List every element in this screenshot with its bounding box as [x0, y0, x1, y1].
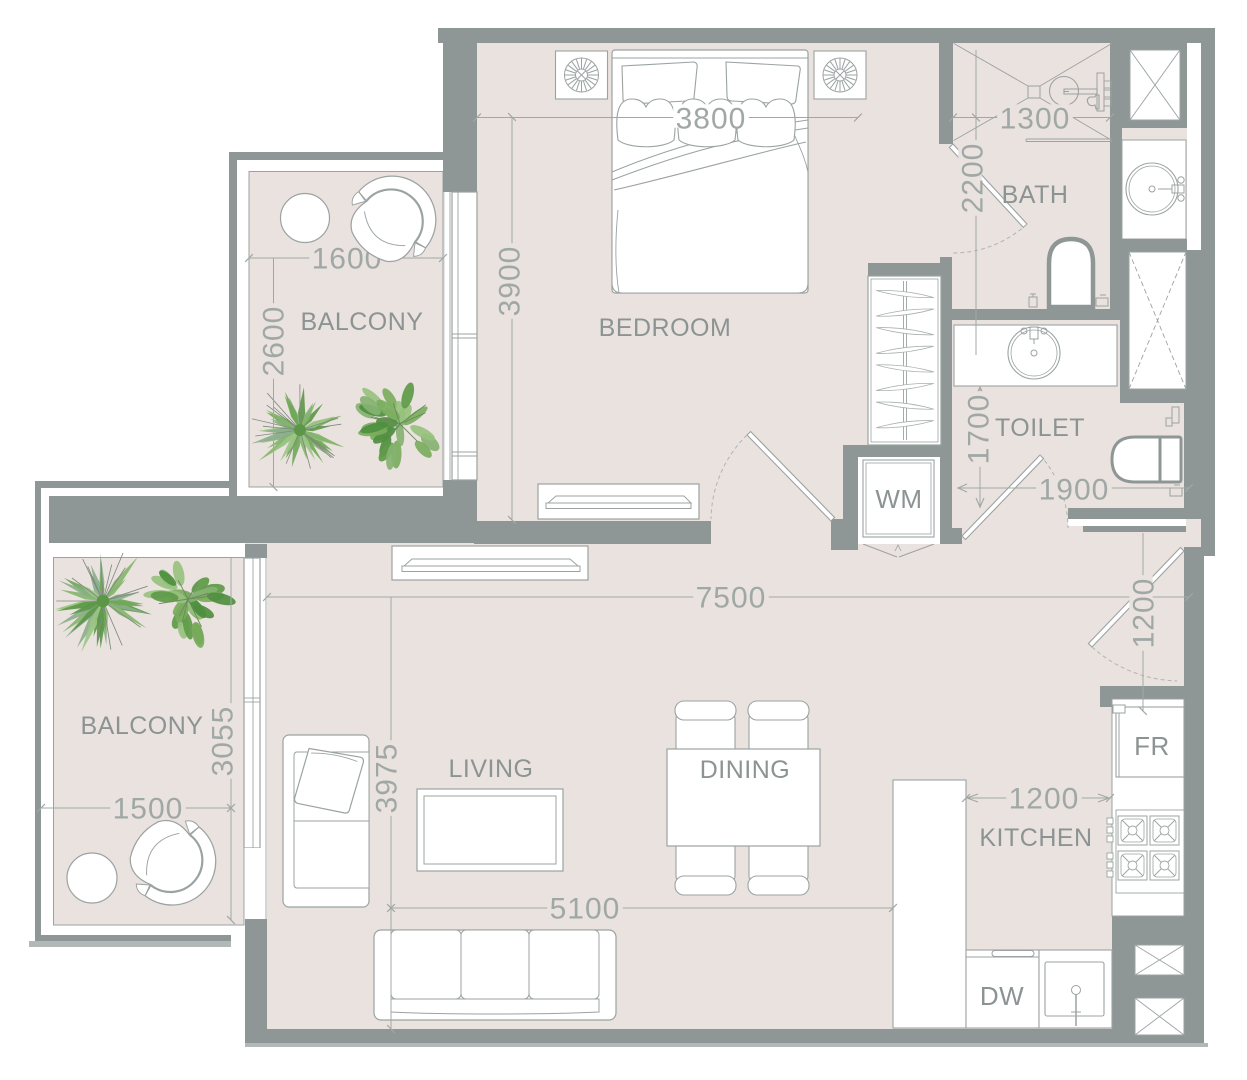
svg-text:KITCHEN: KITCHEN [979, 824, 1092, 852]
svg-text:BALCONY: BALCONY [301, 308, 424, 336]
svg-text:FR: FR [1134, 731, 1170, 761]
svg-text:BATH: BATH [1002, 181, 1069, 209]
svg-text:1200: 1200 [1128, 578, 1161, 649]
svg-text:BALCONY: BALCONY [81, 712, 204, 740]
svg-text:1900: 1900 [1039, 474, 1110, 507]
svg-text:7500: 7500 [696, 582, 767, 615]
svg-text:3975: 3975 [371, 743, 404, 814]
svg-text:3800: 3800 [676, 103, 747, 136]
svg-text:2600: 2600 [258, 306, 291, 377]
svg-text:TOILET: TOILET [995, 414, 1085, 442]
svg-text:DINING: DINING [700, 756, 791, 784]
svg-text:1200: 1200 [1009, 783, 1080, 816]
svg-text:1300: 1300 [1000, 103, 1071, 136]
svg-text:1700: 1700 [963, 394, 996, 465]
svg-text:5100: 5100 [550, 893, 621, 926]
svg-text:2200: 2200 [957, 143, 990, 214]
svg-text:WM: WM [875, 484, 922, 514]
svg-text:BEDROOM: BEDROOM [599, 314, 732, 342]
svg-text:DW: DW [980, 981, 1024, 1011]
svg-text:3900: 3900 [494, 246, 527, 317]
svg-text:3055: 3055 [207, 706, 240, 777]
svg-text:LIVING: LIVING [449, 755, 534, 783]
svg-text:1500: 1500 [113, 793, 184, 826]
